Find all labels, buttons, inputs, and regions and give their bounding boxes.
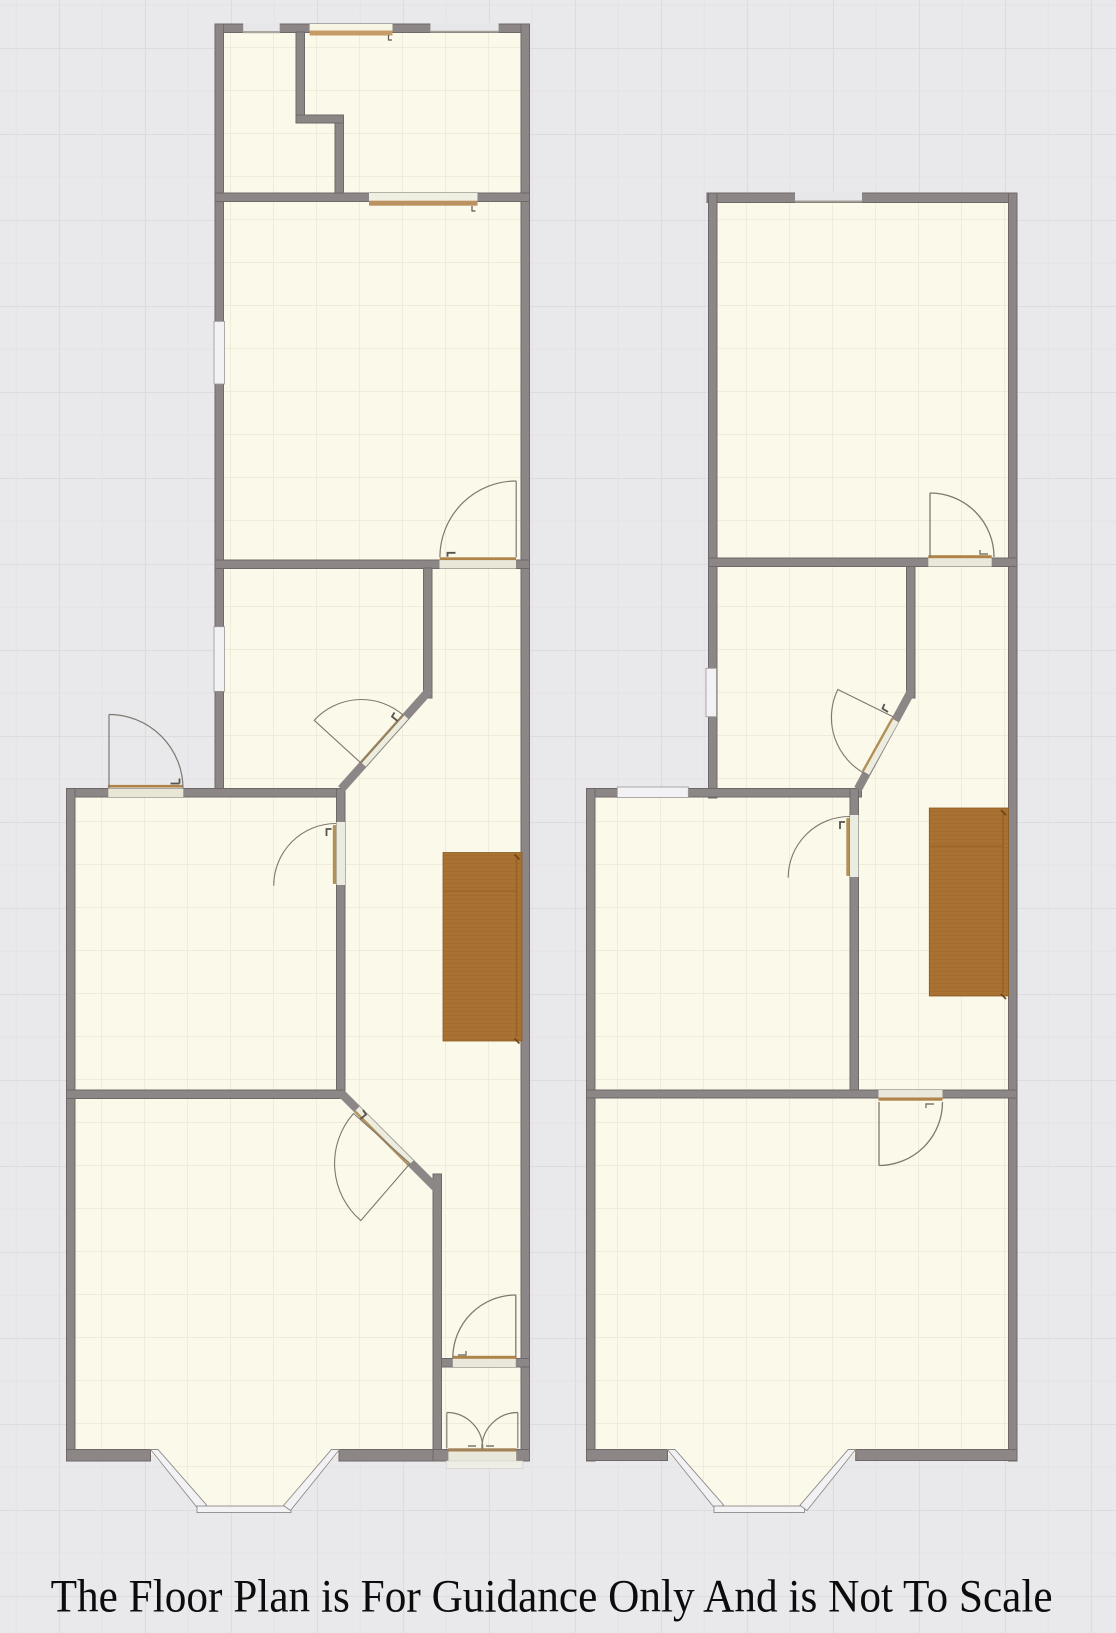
- svg-text:The Floor Plan is For Guidance: The Floor Plan is For Guidance Only And …: [51, 1571, 1053, 1623]
